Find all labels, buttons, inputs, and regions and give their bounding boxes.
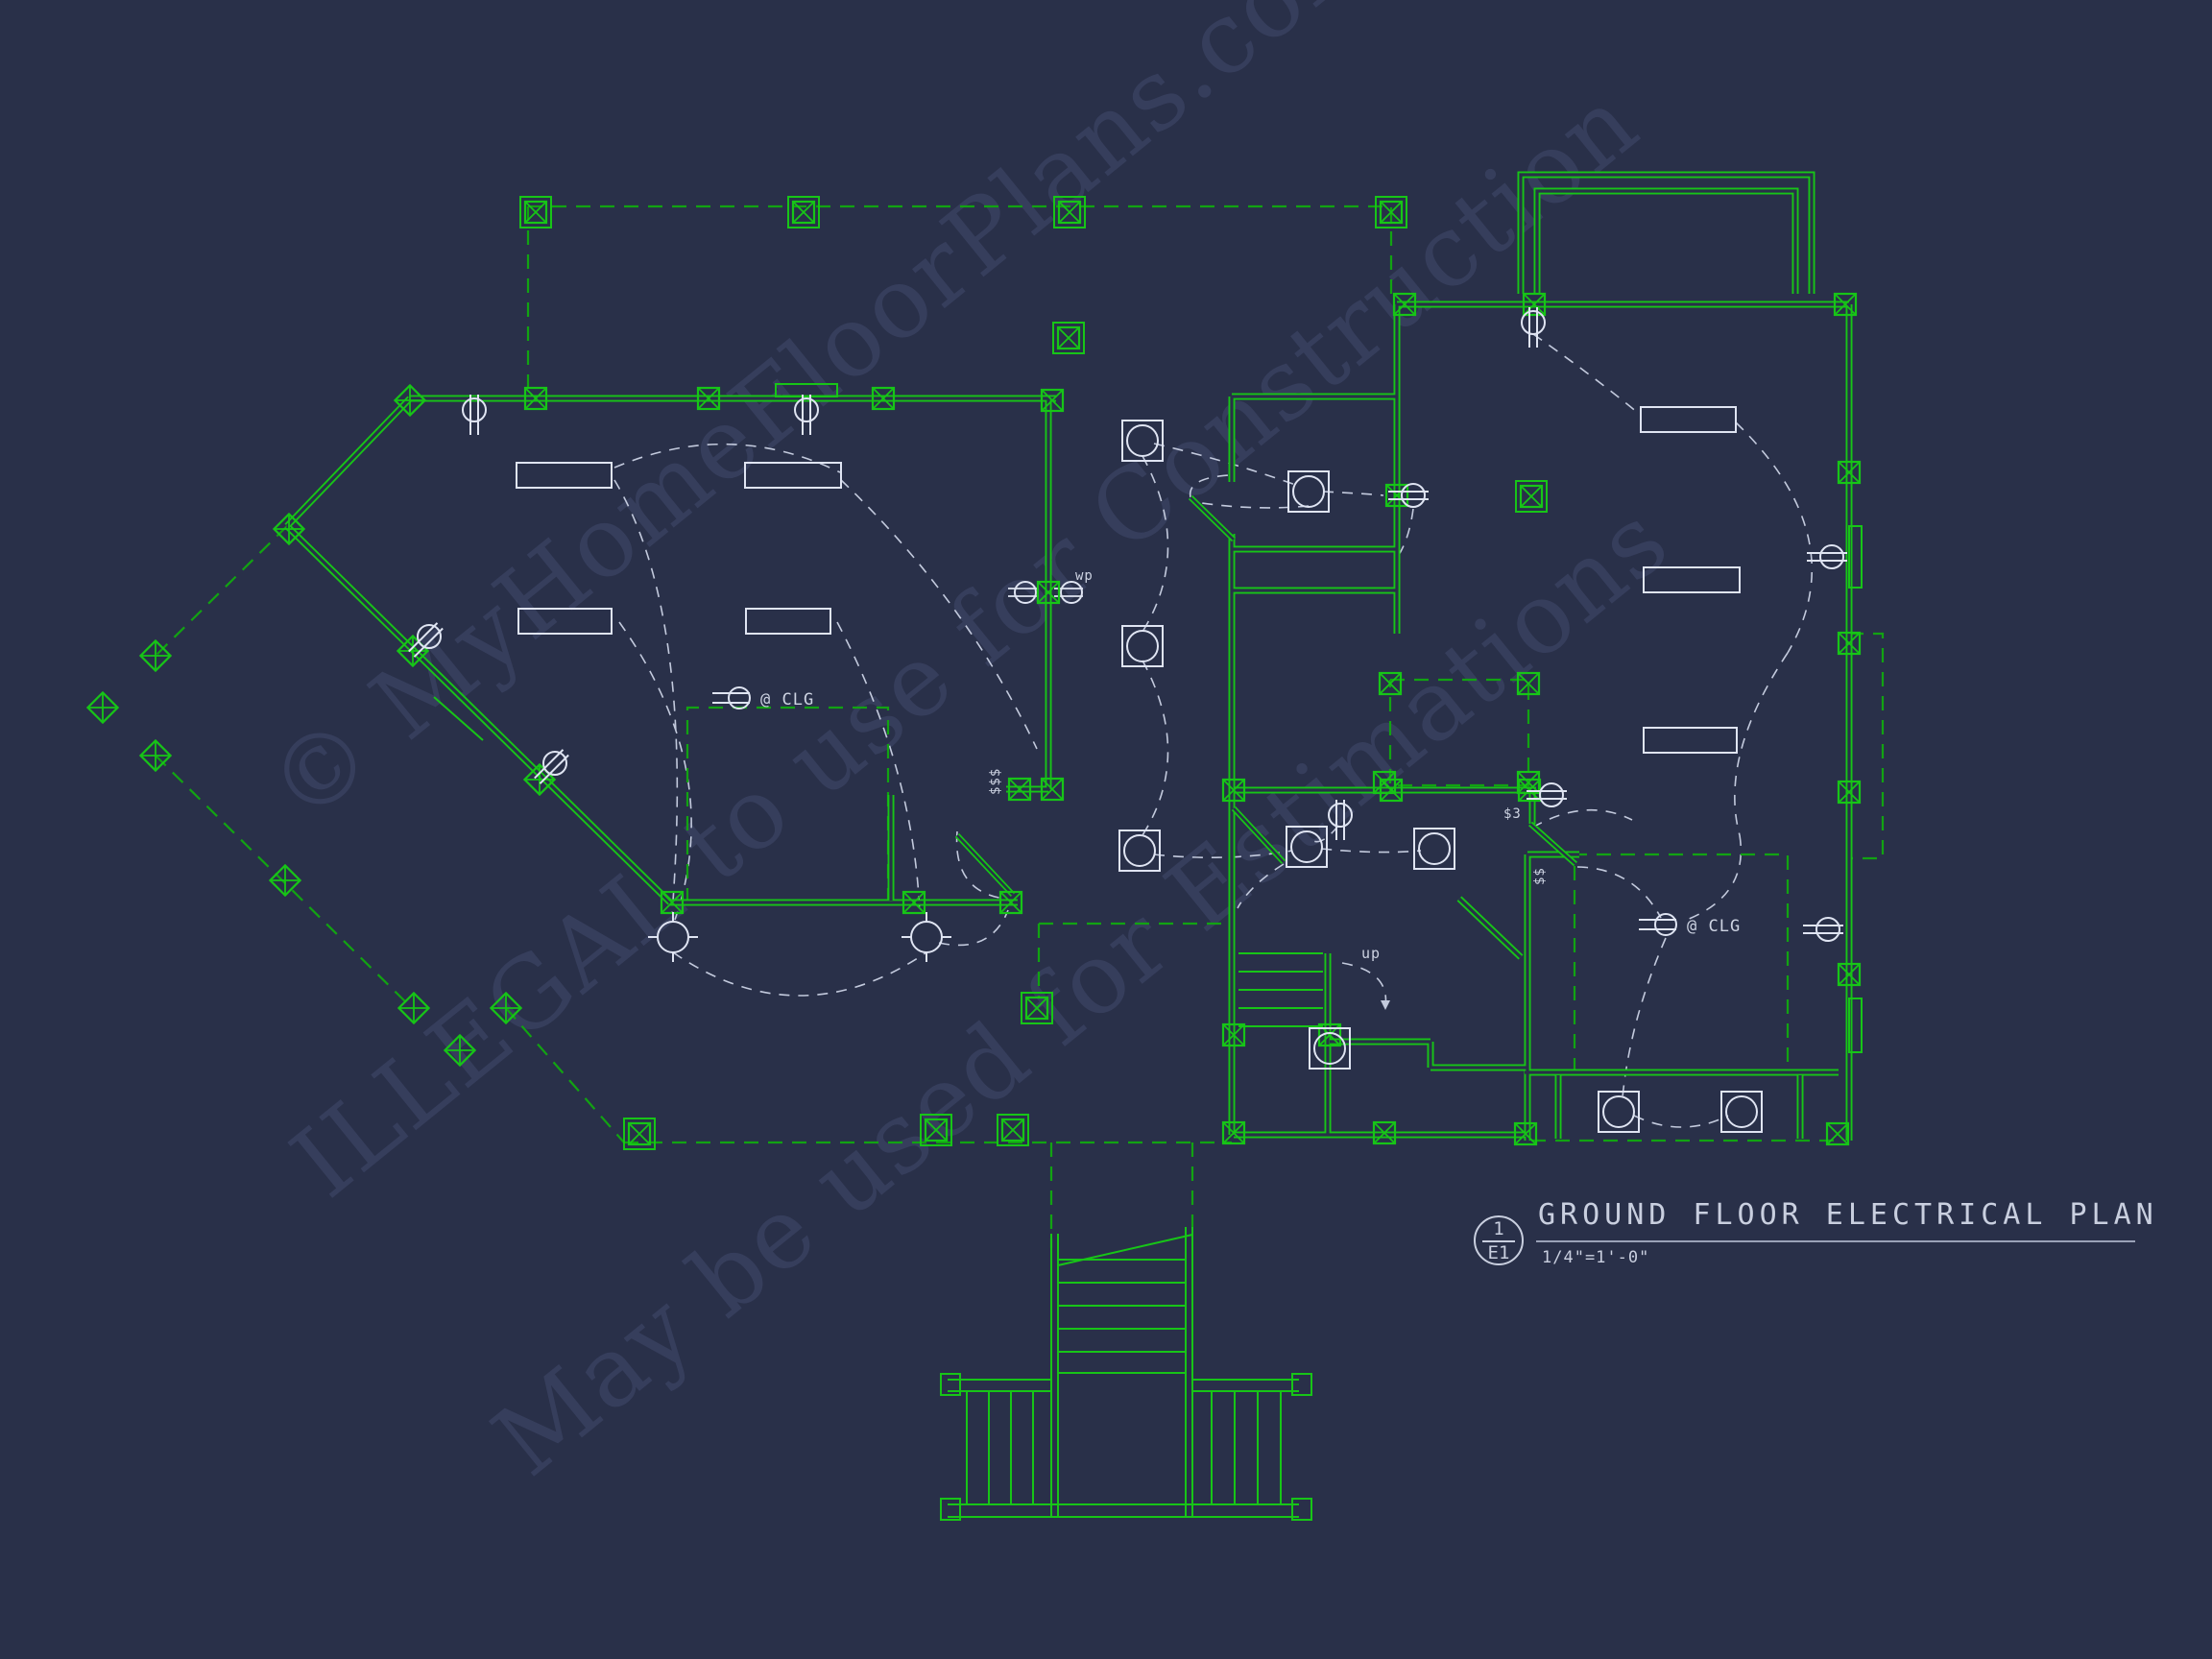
outlet-receptacle-icon <box>1516 481 1547 512</box>
plan-label: @ CLG <box>760 690 814 709</box>
outlet-diamond-icon <box>140 740 170 770</box>
outlet-diamond-icon <box>445 1035 474 1065</box>
recessed-light-icon <box>1721 1092 1762 1132</box>
outlet-receptacle-icon <box>998 1115 1028 1145</box>
wall-sconce-icon <box>1803 918 1843 941</box>
outlet-diamond-icon <box>270 865 300 895</box>
wall-sconce-icon <box>1329 800 1352 840</box>
recessed-light-icon <box>1122 421 1163 461</box>
recessed-light-icon <box>1288 471 1329 512</box>
plan-label: $$$ <box>988 768 1003 795</box>
recessed-light-icon <box>1414 829 1455 869</box>
recessed-light-icon <box>1122 626 1163 666</box>
walls-layer <box>287 175 1849 1141</box>
plan-label: up <box>1361 945 1381 962</box>
wall-sconce-icon <box>1522 307 1545 348</box>
recessed-light-icon <box>1286 827 1327 867</box>
outlet-receptacle-icon <box>1376 197 1407 228</box>
wall-sconce-icon <box>1807 545 1847 568</box>
drawing-stage: © MyHomeFloorPlans.com ILLEGAL to use fo… <box>0 0 2212 1659</box>
plan-label: $$ <box>1532 867 1548 885</box>
wiring-layer <box>614 334 1812 1127</box>
detail-bubble: 1 E1 <box>1474 1215 1524 1265</box>
outlet-receptacle-icon <box>1022 993 1052 1023</box>
outlet-diamond-icon <box>398 993 428 1022</box>
outlet-receptacle-icon <box>1827 1123 1848 1144</box>
outlet-receptacle-icon <box>1380 673 1401 694</box>
outlet-receptacle-icon <box>624 1118 655 1149</box>
outlet-receptacle-icon <box>788 197 819 228</box>
drawing-scale: 1/4"=1'-0" <box>1542 1248 1649 1267</box>
floor-plan-canvas: @ CLG@ CLGwpup$$$$$$3 <box>0 0 2212 1659</box>
ceiling-light-icon <box>902 912 951 962</box>
stairs-railings-layer <box>434 384 1862 1520</box>
outlet-receptacle-icon <box>1054 197 1085 228</box>
plan-label: @ CLG <box>1687 917 1741 936</box>
outlet-diamond-icon <box>87 692 117 722</box>
outlet-receptacle-icon <box>921 1115 951 1145</box>
symbols-layer <box>87 197 1860 1149</box>
recessed-light-icon <box>1119 830 1160 871</box>
plan-label: $3 <box>1503 806 1522 822</box>
fixture-rects-layer <box>517 407 1740 753</box>
outlet-diamond-icon <box>524 764 554 794</box>
ceiling-light-icon <box>648 912 698 962</box>
drawing-title: GROUND FLOOR ELECTRICAL PLAN <box>1536 1198 2135 1242</box>
ceiling-fixture-icon <box>712 687 750 709</box>
outlet-diamond-icon <box>491 993 520 1022</box>
outlet-receptacle-icon <box>520 197 551 228</box>
detail-number: 1 <box>1482 1217 1515 1242</box>
outlet-receptacle-icon <box>1053 323 1084 353</box>
recessed-light-icon <box>1599 1092 1639 1132</box>
plan-label: wp <box>1075 568 1094 584</box>
sheet-number: E1 <box>1476 1242 1522 1263</box>
ceiling-fixture-icon <box>1639 914 1676 935</box>
